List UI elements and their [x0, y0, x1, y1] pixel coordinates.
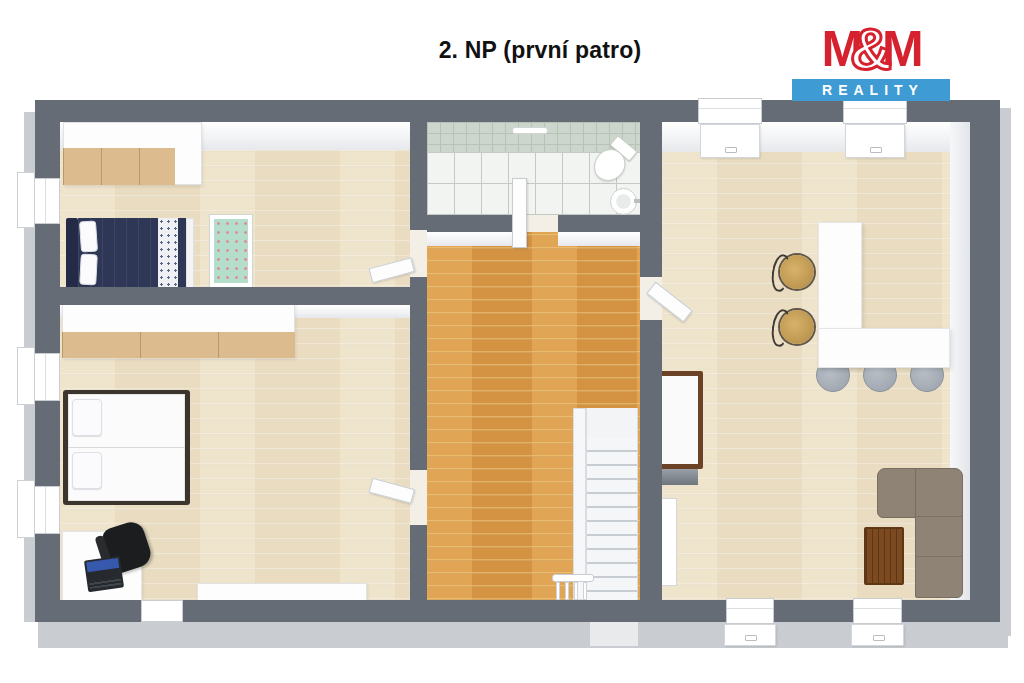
- window-top-1: [698, 98, 762, 124]
- logo-reality: REALITY: [792, 79, 950, 101]
- coffee-table: [864, 527, 904, 585]
- wallface-hall-right: [558, 232, 640, 246]
- sofa-seam: [916, 556, 962, 557]
- logo-ampersand-icon: &: [850, 20, 892, 78]
- bed-runner: [158, 218, 178, 290]
- stair-sidewall: [573, 408, 586, 600]
- stair-railing: [552, 574, 594, 582]
- stair-baluster: [556, 582, 560, 600]
- mm-reality-logo: M & M REALITY: [792, 20, 950, 101]
- kitchen-counter-horizontal: [818, 328, 950, 368]
- crib: [210, 215, 252, 287]
- radiator: [845, 124, 905, 158]
- bed-headboard: [66, 218, 78, 290]
- radiator: [851, 624, 904, 646]
- sofa-seam: [916, 516, 962, 517]
- sink: [610, 188, 637, 215]
- wall-hall-left: [410, 100, 427, 600]
- bed-seam: [68, 447, 185, 448]
- towel-rail: [512, 127, 548, 134]
- stair-baluster: [565, 582, 569, 600]
- stair-landing: [586, 408, 638, 438]
- floor-living-room: [662, 152, 950, 600]
- floorplan-title: 2. NP (první patro): [410, 37, 670, 64]
- laptop: [84, 556, 124, 593]
- bed-footboard: [186, 218, 194, 290]
- wardrobe-top-bedroom-doors: [63, 148, 175, 185]
- radiator: [724, 624, 776, 646]
- single-bed-base: [659, 469, 698, 485]
- window-left-1: [33, 178, 60, 224]
- window-left-3: [33, 486, 60, 534]
- window-bottom-2: [853, 598, 902, 624]
- opening-bottom-left-room: [141, 600, 183, 622]
- logo-mm: M & M: [792, 20, 950, 78]
- radiator: [700, 124, 760, 158]
- pillow: [72, 399, 102, 436]
- window-shutter: [17, 172, 35, 228]
- window-bottom-1: [726, 598, 774, 624]
- pillow: [79, 254, 98, 286]
- wallface-hall-left: [427, 232, 512, 246]
- pillow: [72, 452, 102, 489]
- stair-baluster: [583, 582, 587, 600]
- window-shutter: [17, 347, 35, 405]
- pillow: [79, 220, 98, 252]
- door-leaf-bathroom: [512, 178, 527, 248]
- wall-bedrooms-divider: [35, 287, 427, 305]
- wall-hall-living: [640, 100, 662, 600]
- floorplan-canvas: 2. NP (první patro) M & M REALITY: [0, 0, 1024, 683]
- corner-sofa-main: [915, 468, 963, 598]
- window-left-2: [33, 353, 60, 401]
- stair-exit-notch: [590, 622, 638, 646]
- dining-chair: [780, 310, 814, 344]
- wardrobe-bottom-bedroom-doors: [62, 332, 295, 358]
- dining-chair: [780, 255, 814, 289]
- window-shutter: [17, 480, 35, 538]
- window-top-2: [843, 98, 907, 124]
- stair-baluster: [574, 582, 578, 600]
- wall-right: [970, 100, 1000, 622]
- outer-band-right: [1000, 108, 1011, 636]
